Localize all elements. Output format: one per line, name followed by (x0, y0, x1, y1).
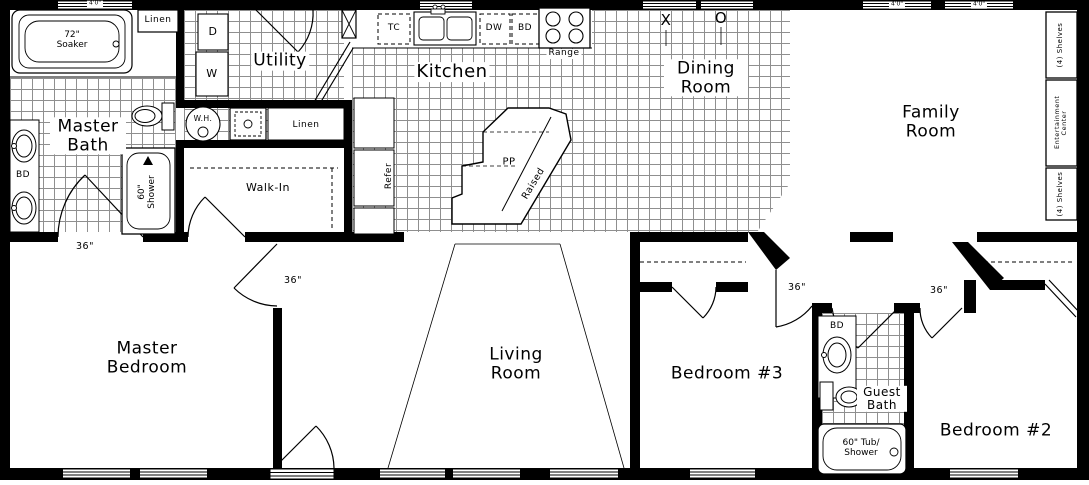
window-master-bedroom-1 (63, 470, 130, 478)
utility-pocket-door (314, 42, 355, 105)
window-living-2 (453, 470, 520, 478)
label-washer: W (206, 68, 217, 80)
dim-master-bath-door: 36" (76, 242, 94, 252)
room-label-bedroom3: Bedroom #3 (671, 365, 783, 384)
bedroom3-door (776, 270, 812, 327)
floor-plan: Master Bath Utility Kitchen Dining Room … (0, 0, 1089, 485)
dim-window-family-1: 4'0" (889, 2, 905, 9)
dim-bedroom2-door: 36" (930, 286, 948, 296)
label-tub-shower: 60" Tub/ Shower (832, 439, 890, 459)
dim-window-top-left: 4'0" (87, 1, 103, 8)
window-kitchen (420, 2, 472, 9)
label-shower: 60" Shower (138, 167, 158, 217)
label-range: Range (546, 49, 581, 59)
room-label-living: Living Room (476, 345, 556, 382)
label-shelves-lower: (4) Shelves (1057, 172, 1065, 217)
room-label-master-bedroom: Master Bedroom (92, 339, 202, 376)
front-door (274, 426, 334, 468)
label-refrigerator: Refer (385, 163, 395, 189)
room-label-family: Family Room (891, 103, 971, 140)
label-shelves-upper: (4) Shelves (1057, 23, 1065, 68)
dim-master-bedroom-door: 36" (284, 276, 302, 286)
room-label-master-bath: Master Bath (50, 117, 126, 154)
dim-window-family-2: 4'0" (971, 2, 987, 9)
room-label-utility: Utility (251, 52, 309, 71)
water-heater-icon (186, 107, 220, 141)
room-label-guest-bath: Guest Bath (857, 386, 907, 412)
label-entertainment-center: Entertainment Center (1054, 97, 1068, 149)
label-linen-hall: Linen (293, 121, 320, 131)
window-mark-stems (666, 27, 721, 46)
utility-back-door (256, 10, 313, 52)
label-vanity-guest: BD (830, 322, 844, 332)
bedroom2-closet-door (1045, 280, 1080, 317)
dim-bedroom3-door: 36" (788, 283, 806, 293)
room-label-bedroom2: Bedroom #2 (940, 422, 1052, 441)
window-living-3 (550, 470, 618, 478)
window-bedroom3 (690, 470, 755, 478)
room-label-walk-in: Walk-In (246, 182, 290, 194)
label-linen-master: Linen (145, 16, 172, 26)
window-section-post (342, 10, 356, 38)
label-dryer: D (209, 26, 218, 38)
label-trash-compactor: TC (388, 24, 400, 34)
range-icon (539, 8, 590, 48)
walls (0, 0, 1089, 480)
walk-in-door (188, 197, 245, 237)
room-label-kitchen: Kitchen (414, 62, 489, 82)
label-water-heater: W.H. (194, 115, 213, 123)
window-dining (643, 1, 753, 9)
window-mark-x: X (661, 12, 672, 29)
label-vanity-master: BD (16, 171, 30, 181)
label-base-cabinet: BD (518, 24, 532, 34)
toilet-master-icon (132, 103, 174, 130)
label-island-prep: PP (502, 157, 515, 168)
label-soaker-tub: 72" Soaker (50, 31, 94, 51)
label-dishwasher: DW (486, 24, 503, 34)
plan-geometry (0, 0, 1089, 485)
window-mark-o: O (715, 10, 727, 27)
room-label-dining: Dining Room (664, 59, 748, 96)
bedroom2-door (920, 308, 962, 338)
window-master-bedroom-2 (140, 470, 207, 478)
furnace-icon (230, 108, 266, 140)
front-door-steps (270, 469, 334, 479)
bedroom3-closet-door (672, 287, 716, 318)
master-bedroom-door (234, 244, 277, 306)
walk-in-shelf-lines (190, 168, 338, 230)
window-living-1 (380, 470, 445, 478)
window-bedroom2 (950, 470, 1018, 478)
